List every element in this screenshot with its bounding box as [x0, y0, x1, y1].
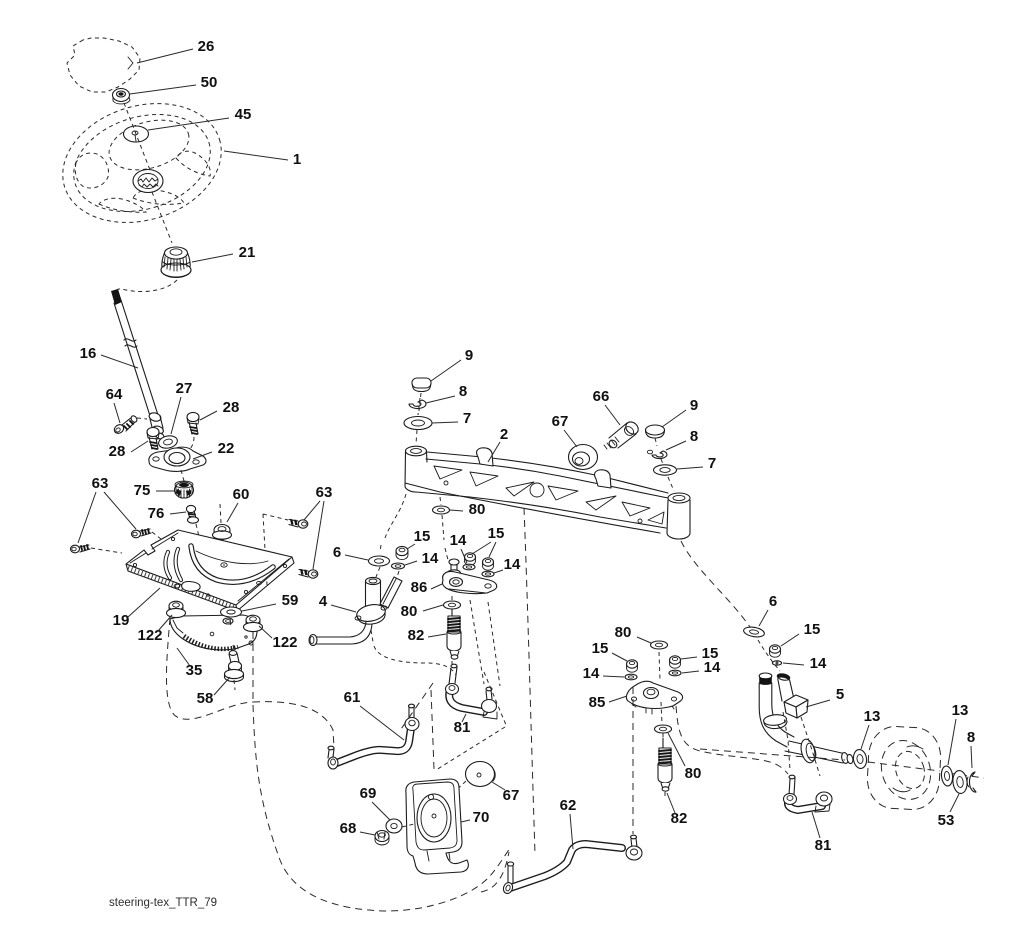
svg-text:21: 21: [239, 244, 256, 261]
svg-text:16: 16: [80, 345, 97, 362]
svg-text:7: 7: [463, 410, 471, 427]
svg-text:9: 9: [465, 347, 473, 364]
svg-text:82: 82: [671, 810, 688, 827]
svg-text:15: 15: [488, 525, 505, 542]
svg-text:63: 63: [92, 475, 109, 492]
svg-text:steering-tex_TTR_79: steering-tex_TTR_79: [109, 897, 217, 909]
svg-text:27: 27: [176, 380, 193, 397]
svg-text:68: 68: [340, 820, 357, 837]
svg-text:58: 58: [197, 690, 214, 707]
svg-text:13: 13: [952, 702, 969, 719]
svg-text:86: 86: [411, 579, 428, 596]
svg-text:64: 64: [106, 386, 123, 403]
svg-text:45: 45: [235, 106, 252, 123]
svg-text:8: 8: [459, 383, 467, 400]
svg-text:66: 66: [593, 388, 610, 405]
svg-text:81: 81: [815, 837, 832, 854]
svg-text:14: 14: [422, 550, 439, 567]
svg-text:15: 15: [414, 528, 431, 545]
svg-text:1: 1: [293, 151, 301, 168]
svg-text:28: 28: [109, 443, 126, 460]
svg-text:8: 8: [690, 428, 698, 445]
svg-text:22: 22: [218, 440, 235, 457]
svg-text:14: 14: [450, 532, 467, 549]
svg-text:67: 67: [552, 413, 569, 430]
svg-text:2: 2: [500, 426, 508, 443]
svg-text:14: 14: [704, 659, 721, 676]
svg-text:59: 59: [282, 592, 299, 609]
svg-text:6: 6: [333, 544, 341, 561]
svg-text:80: 80: [401, 603, 418, 620]
svg-text:122: 122: [272, 634, 297, 651]
svg-text:61: 61: [344, 689, 361, 706]
svg-text:9: 9: [690, 397, 698, 414]
svg-text:70: 70: [473, 809, 490, 826]
svg-text:82: 82: [408, 627, 425, 644]
svg-text:35: 35: [186, 662, 203, 679]
svg-text:4: 4: [319, 593, 328, 610]
svg-text:7: 7: [708, 455, 716, 472]
svg-text:76: 76: [148, 505, 165, 522]
svg-text:60: 60: [233, 486, 250, 503]
svg-text:28: 28: [223, 399, 240, 416]
svg-text:85: 85: [589, 694, 606, 711]
svg-text:63: 63: [316, 484, 333, 501]
svg-text:26: 26: [198, 38, 215, 55]
svg-text:69: 69: [360, 785, 377, 802]
svg-text:6: 6: [769, 593, 777, 610]
svg-text:5: 5: [836, 686, 844, 703]
svg-text:53: 53: [938, 812, 955, 829]
svg-text:14: 14: [583, 665, 600, 682]
svg-text:62: 62: [560, 797, 577, 814]
svg-text:80: 80: [685, 765, 702, 782]
svg-text:15: 15: [804, 621, 821, 638]
svg-text:80: 80: [615, 624, 632, 641]
svg-text:14: 14: [810, 655, 827, 672]
svg-text:14: 14: [504, 556, 521, 573]
svg-text:50: 50: [201, 74, 218, 91]
svg-text:80: 80: [469, 501, 486, 518]
svg-text:13: 13: [864, 708, 881, 725]
svg-text:19: 19: [113, 612, 130, 629]
svg-text:75: 75: [134, 482, 151, 499]
svg-text:15: 15: [592, 640, 609, 657]
svg-text:8: 8: [967, 729, 975, 746]
